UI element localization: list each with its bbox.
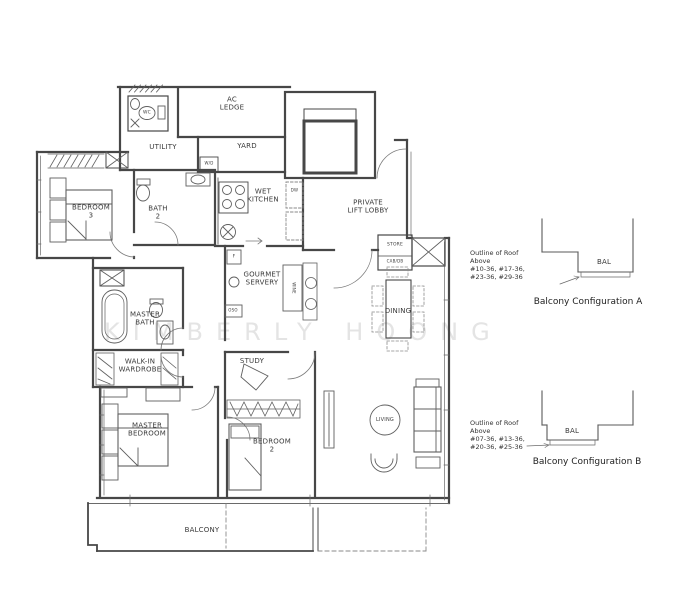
label-fridge: F — [233, 254, 236, 259]
roof-note-a-line2: Above — [470, 257, 525, 265]
label-gourmet-servery: GOURMET SERVERY — [243, 271, 280, 288]
label-bal-b: BAL — [565, 427, 579, 435]
roof-note-a-line1: Outline of Roof — [470, 249, 525, 257]
label-master-bedroom: MASTER BEDROOM — [128, 422, 166, 439]
balcony-config-a-diagram — [542, 219, 633, 284]
balcony-walls — [88, 503, 426, 551]
bedroom-furniture — [50, 178, 268, 490]
label-bedroom-3: BEDROOM 3 — [72, 204, 110, 221]
floorplan-page: KIMBERLY HOONG — [0, 0, 699, 600]
label-living: LIVING — [376, 417, 394, 423]
store-cabinet — [378, 235, 412, 270]
roof-note-b-line1: Outline of Roof — [470, 419, 525, 427]
caption-config-b: Balcony Configuration B — [533, 457, 642, 467]
label-walk-in-wardrobe: WALK-IN WARDROBE — [119, 358, 162, 375]
label-utility: UTILITY — [149, 143, 176, 151]
lift-shaft — [285, 92, 375, 178]
roof-note-a-line4: #23-36, #29-36 — [470, 273, 525, 281]
roof-note-b-line4: #20-36, #25-36 — [470, 443, 525, 451]
label-bal-a: BAL — [597, 258, 611, 266]
label-dining: DINING — [385, 307, 412, 315]
label-wine: WINE — [290, 282, 295, 293]
roof-note-a: Outline of Roof Above #10-36, #17-36, #2… — [470, 249, 525, 282]
pocket-door-arrow — [246, 238, 262, 244]
label-ac-ledge: AC LEDGE — [220, 96, 245, 113]
label-dw: DW — [291, 189, 298, 194]
wardrobe-hatches — [48, 85, 300, 418]
label-master-bath: MASTER BATH — [130, 311, 160, 328]
roof-note-b-line3: #07-36, #13-36, — [470, 435, 525, 443]
roof-note-b-line2: Above — [470, 427, 525, 435]
label-bath-2: BATH 2 — [148, 205, 167, 222]
label-wd: W/D — [205, 162, 214, 167]
caption-config-a: Balcony Configuration A — [534, 297, 643, 307]
living-furniture — [324, 379, 441, 472]
label-balcony: BALCONY — [185, 526, 220, 534]
roof-note-a-line3: #10-36, #17-36, — [470, 265, 525, 273]
balcony-config-b-diagram — [527, 391, 633, 448]
label-wet-kitchen: WET KITCHEN — [247, 188, 279, 205]
label-private-lift-lobby: PRIVATE LIFT LOBBY — [347, 199, 388, 216]
label-store: STORE — [387, 242, 403, 247]
label-bedroom-2: BEDROOM 2 — [253, 438, 291, 455]
roof-note-b: Outline of Roof Above #07-36, #13-36, #2… — [470, 419, 525, 452]
label-study: STUDY — [240, 357, 264, 365]
label-oso: OSO — [228, 309, 237, 314]
label-wc: WC — [143, 110, 151, 115]
label-yard: YARD — [237, 142, 257, 150]
study-chair — [241, 364, 268, 390]
label-cab-db: CAB/DB — [387, 260, 404, 265]
